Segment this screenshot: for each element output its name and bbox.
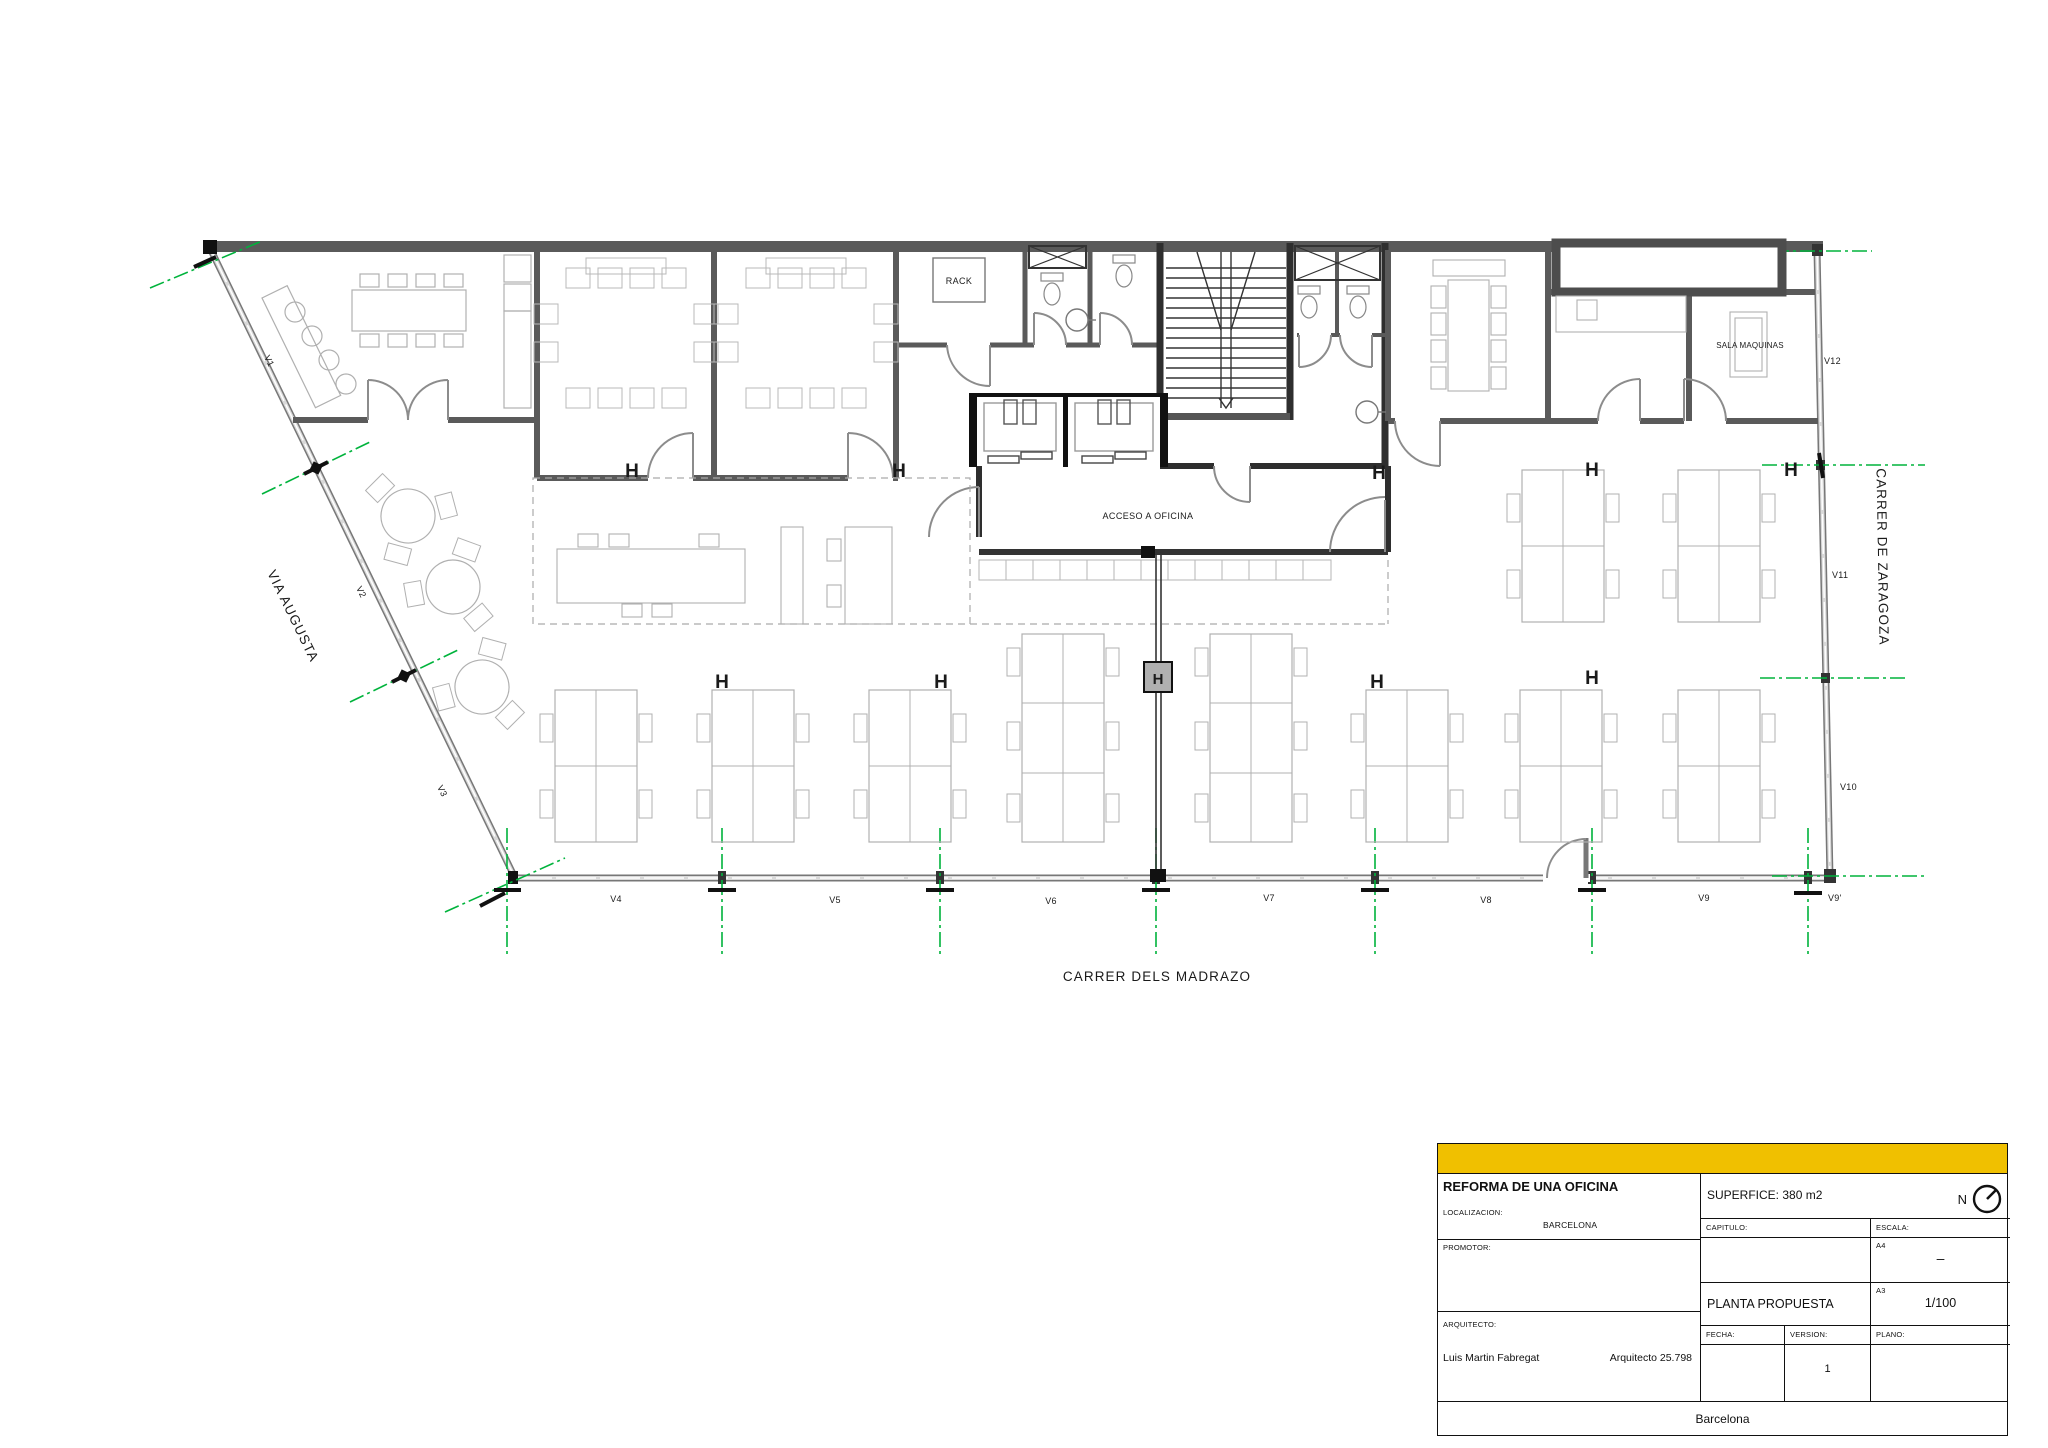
column-marker: H [1585,460,1599,481]
north-indicator: N [1958,1182,2004,1216]
axis-lines [150,241,1928,958]
column-marker: H [1370,672,1384,693]
axis-ticks [194,257,1823,906]
desk-clusters [540,470,1775,842]
meeting-room-b [714,258,898,408]
version-label: VERSION: [1790,1330,1827,1339]
plano-label: PLANO: [1876,1330,1905,1339]
desk-cluster [1663,690,1775,842]
window-labels: V1 V2 V3 V4 V5 V6 V7 V8 V9 V9' V10 V11 V… [262,353,1857,906]
title-block-city: Barcelona [1438,1401,2007,1437]
arquitecto-name: Luis Martin Fabregat [1443,1352,1539,1364]
window-label-v10: V10 [1840,782,1857,792]
street-label-madrazo: CARRER DELS MADRAZO [1063,969,1251,984]
escala-label: ESCALA: [1876,1223,1909,1232]
drawing-sheet: RACK [0,0,2048,1448]
localizacion-value: BARCELONA [1543,1220,1597,1230]
window-label-v8: V8 [1480,895,1492,905]
desk-cluster [1351,690,1463,842]
localizacion-label: LOCALIZACION: [1443,1208,1503,1217]
desk-cluster [697,690,809,842]
meeting-room-a [534,258,718,408]
column-marker: H [1585,668,1599,689]
plano-title: PLANTA PROPUESTA [1707,1297,1834,1311]
entrance-mat [979,560,1331,580]
desk-cluster [1505,690,1617,842]
promotor-label: PROMOTOR: [1443,1243,1491,1252]
window-label-v6: V6 [1045,896,1057,906]
window-label-v12: V12 [1824,356,1841,366]
window-label-v5: V5 [829,895,841,905]
version-value: 1 [1785,1363,1870,1375]
desk-cluster [1195,634,1307,842]
column-marker: H [892,461,906,482]
office-room [1556,296,1686,332]
lounge-furniture [262,255,531,408]
title-block: REFORMA DE UNA OFICINA LOCALIZACION: BAR… [1437,1143,2008,1436]
a4-label: A4 [1876,1241,1886,1250]
capitulo-label: CAPITULO: [1706,1223,1747,1232]
rack-label: RACK [946,276,973,286]
street-label-via-augusta: VIA AUGUSTA [264,568,321,665]
reception-furniture [557,527,892,624]
superficie-value: SUPERFICE: 380 m2 [1707,1188,1822,1202]
window-label-v2: V2 [354,584,368,599]
column-marker: H [1153,671,1164,688]
column-marker: H [934,672,948,693]
arquitecto-number: Arquitecto 25.798 [1610,1352,1692,1364]
north-letter: N [1958,1192,1967,1207]
sala-maquinas-label: SALA MAQUINAS [1716,341,1784,350]
desk-cluster [540,690,652,842]
title-block-accent-bar [1438,1144,2007,1174]
window-label-v4: V4 [610,894,622,904]
exterior-walls [203,240,1836,884]
window-label-v9b: V9' [1828,893,1842,903]
desk-cluster [1663,470,1775,622]
column-marker: H [1784,460,1798,481]
a3-value: 1/100 [1871,1296,2010,1310]
desk-cluster [1507,470,1619,622]
arquitecto-label: ARQUITECTO: [1443,1320,1496,1329]
column-marker: H [625,461,639,482]
fecha-label: FECHA: [1706,1330,1735,1339]
title-block-main: REFORMA DE UNA OFICINA LOCALIZACION: BAR… [1438,1174,2007,1401]
light-shaft [1556,243,1782,292]
round-tables [350,470,528,745]
column-marker: H [715,672,729,693]
street-label-zaragoza: CARRER DE ZARAGOZA [1873,468,1891,646]
project-title: REFORMA DE UNA OFICINA [1443,1179,1618,1194]
window-label-v3: V3 [435,783,449,798]
window-label-v9: V9 [1698,893,1710,903]
desk-cluster [854,690,966,842]
acceso-label: ACCESO A OFICINA [1103,511,1194,521]
column-markers: H H H H H H H H H [625,460,1798,693]
desk-cluster [1007,634,1119,842]
north-compass-icon [1970,1182,2004,1216]
glass-partition [1144,552,1172,882]
meeting-room-c [1431,260,1506,391]
window-label-v11: V11 [1832,570,1848,580]
column-marker: H [1372,463,1386,484]
exit-door [1543,838,1590,882]
a3-label: A3 [1876,1286,1886,1295]
a4-value: – [1871,1250,2010,1266]
staircase [1166,252,1286,408]
window-label-v7: V7 [1263,893,1275,903]
elevators [969,393,1168,467]
